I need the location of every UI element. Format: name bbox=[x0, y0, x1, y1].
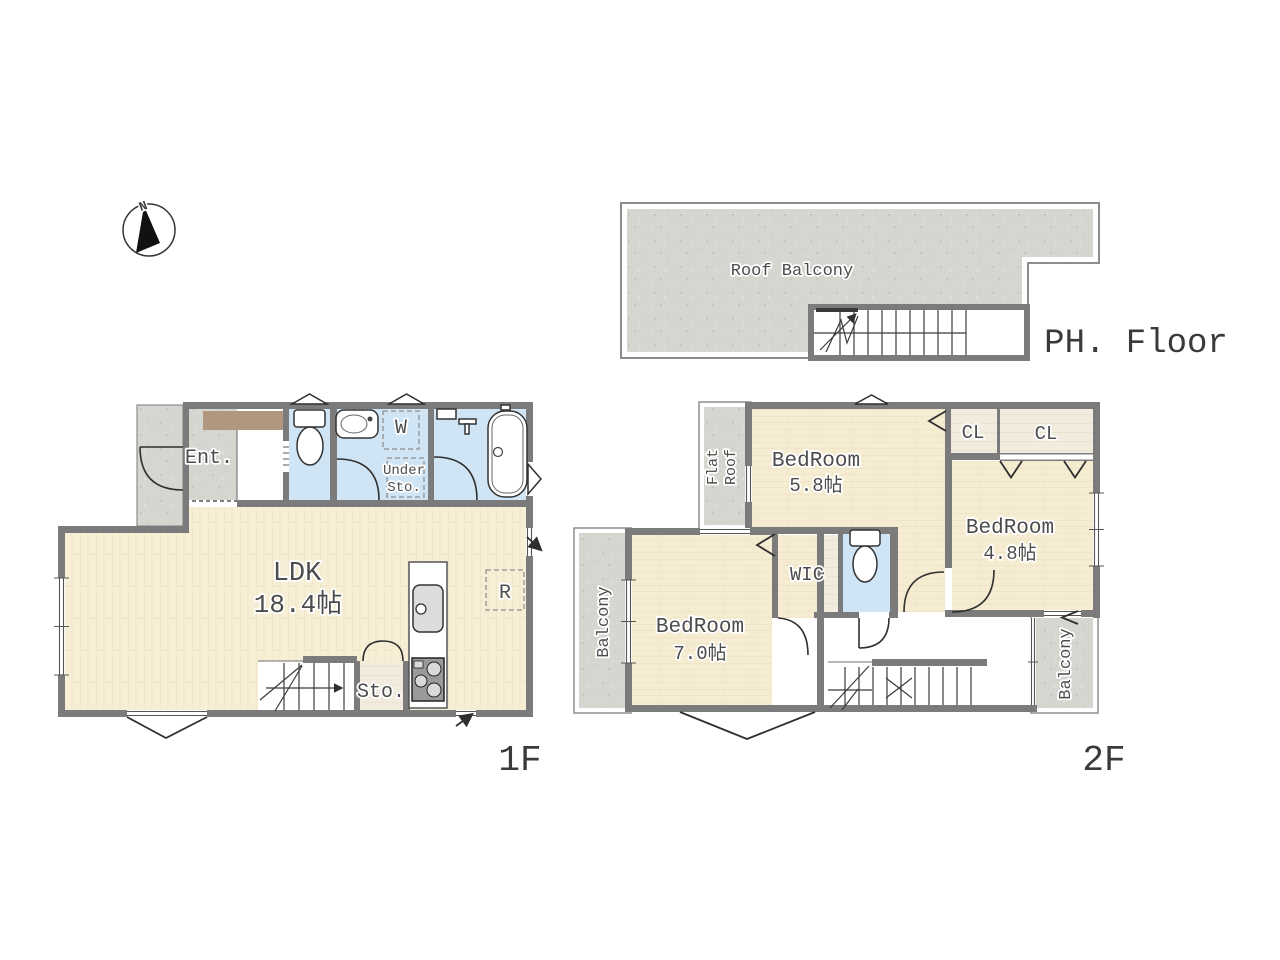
stove-icon bbox=[412, 658, 444, 701]
compass: N bbox=[123, 198, 175, 256]
entrance-label: Ent. bbox=[185, 447, 233, 470]
closet-a-label: CL bbox=[962, 422, 985, 444]
ldk-area-label: 18.4帖 bbox=[254, 589, 342, 620]
floor-plan-page: N Roof Balcony PH. Floor bbox=[0, 0, 1280, 960]
roof-balcony-label: Roof Balcony bbox=[731, 262, 853, 281]
floor-1f-title: 1F bbox=[498, 740, 541, 781]
entrance-porch bbox=[137, 405, 183, 526]
floor-2f-title: 2F bbox=[1082, 740, 1125, 781]
ph-floor-plan: Roof Balcony PH. Floor bbox=[621, 203, 1228, 363]
bathroom-vent-icon bbox=[528, 464, 541, 494]
floor-plan-drawing: N Roof Balcony PH. Floor bbox=[0, 0, 1280, 960]
toilet-door-1f bbox=[283, 441, 289, 472]
closet-b-label: CL bbox=[1035, 423, 1058, 445]
bedroom-48-name-label: BedRoom bbox=[966, 517, 1054, 540]
window-washroom-top-icon bbox=[389, 394, 424, 404]
window-bedroom70-bottom-icon bbox=[680, 712, 815, 739]
entrance-mat bbox=[203, 411, 283, 430]
flat-roof-label-2: Roof bbox=[723, 449, 740, 485]
ldk-name-label: LDK bbox=[273, 559, 322, 589]
bedroom-48-area-label: 4.8帖 bbox=[983, 542, 1036, 565]
balcony-right-label: Balcony bbox=[1057, 628, 1076, 699]
window-bedroom58-top-icon bbox=[855, 395, 888, 404]
toilet-icon bbox=[294, 410, 325, 465]
ph-floor-title: PH. Floor bbox=[1044, 325, 1228, 363]
bedroom-58-name-label: BedRoom bbox=[772, 450, 860, 473]
refrigerator-label: R bbox=[499, 582, 511, 605]
kitchen-counter bbox=[409, 562, 447, 708]
wic-label: WIC bbox=[790, 564, 824, 586]
flat-roof-label-1: Flat bbox=[705, 449, 722, 485]
staircase-1f-area bbox=[258, 661, 354, 710]
vanity-sink-icon bbox=[336, 410, 378, 438]
window-toilet-top-icon bbox=[292, 394, 327, 404]
washer-label: W bbox=[395, 417, 407, 440]
under-storage-label-2: Sto. bbox=[387, 480, 421, 496]
toilet-2f-icon bbox=[850, 530, 880, 582]
under-storage-label-1: Under bbox=[383, 463, 425, 479]
balcony-left-label: Balcony bbox=[595, 586, 614, 657]
floor-1f-plan: Ent. W Under Sto. LDK 18.4帖 R Sto. 1F bbox=[54, 394, 542, 781]
bedroom-70-area-label: 7.0帖 bbox=[673, 642, 726, 665]
floor-2f-plan: Flat Roof BedRoom 5.8帖 CL CL BedRoom 4.8… bbox=[574, 395, 1126, 781]
bedroom-70-name-label: BedRoom bbox=[656, 616, 744, 639]
ph-staircase bbox=[808, 304, 1030, 361]
bedroom-58-area-label: 5.8帖 bbox=[789, 474, 842, 497]
storage-label-1f: Sto. bbox=[357, 681, 405, 704]
